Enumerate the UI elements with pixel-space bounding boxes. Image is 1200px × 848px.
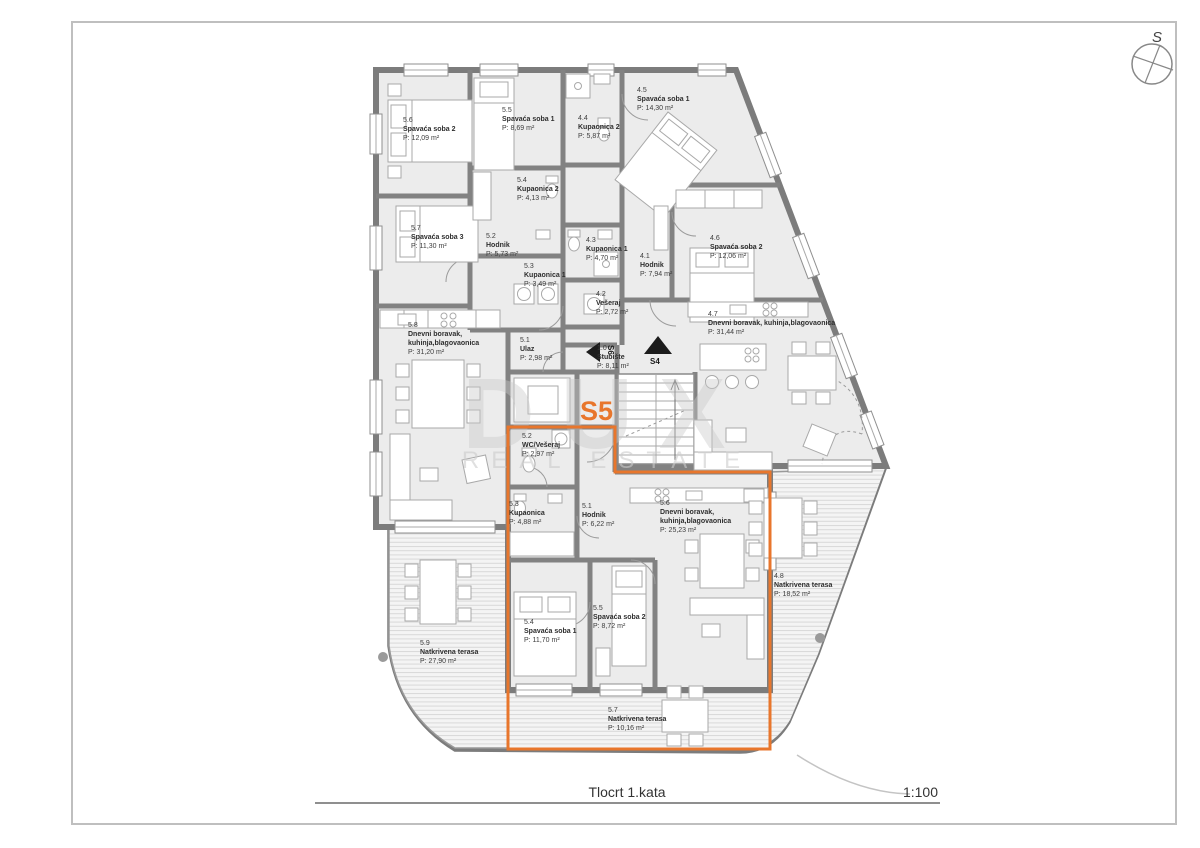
- room-area: P: 8,11 m²: [597, 363, 629, 370]
- room-name: Natkrivena terasa: [774, 582, 832, 589]
- room-name: Natkrivena terasa: [608, 716, 666, 723]
- title-block: Tlocrt 1.kata 1:100: [315, 784, 940, 803]
- closet: [654, 206, 668, 250]
- room-area: P: 8,69 m²: [502, 125, 535, 132]
- room-area: P: 8,72 m²: [593, 623, 626, 630]
- room-code: 5.2: [486, 233, 496, 240]
- room-code: 5.3: [524, 263, 534, 270]
- room-area: P: 10,16 m²: [608, 725, 645, 732]
- kitchen-counter: [630, 488, 768, 503]
- floor-plan-sheet: S6 S4 DUX REAL ESTATE S5 5.6Spavaća soba…: [0, 0, 1200, 848]
- room-area: P: 25,23 m²: [660, 527, 697, 534]
- room-area: P: 6,22 m²: [582, 521, 615, 528]
- room-code: 5.9: [420, 640, 430, 647]
- kitchen-counter: [380, 310, 500, 328]
- room-code: 5.5: [593, 605, 603, 612]
- terrace-table: [749, 498, 817, 558]
- room-code: 5.6: [403, 117, 413, 124]
- room-name: Natkrivena terasa: [420, 649, 478, 656]
- room-name: Dnevni boravak, kuhinja,blagovaonica: [708, 320, 835, 327]
- room-code: 4.1: [640, 253, 650, 260]
- drawing-scale: 1:100: [903, 784, 938, 800]
- room-code: 5.7: [411, 225, 421, 232]
- room-code: 5.1: [520, 337, 530, 344]
- room-area: P: 2,98 m²: [520, 355, 553, 362]
- room-code: 5.2: [522, 433, 532, 440]
- room-name: Kupaonica 2: [578, 124, 620, 131]
- room-code: 5.4: [517, 177, 527, 184]
- room-code: 5.6: [660, 500, 670, 507]
- room-name: Hodnik: [640, 262, 664, 269]
- wardrobe: [676, 190, 762, 208]
- room-name: Kupaonica 1: [586, 246, 628, 253]
- room-name: Spavaća soba 2: [710, 244, 763, 251]
- room-area: P: 18,52 m²: [774, 591, 811, 598]
- room-area: P: 11,30 m²: [411, 243, 447, 250]
- room-name: Spavaća soba 1: [502, 116, 555, 123]
- room-area: P: 4,70 m²: [586, 255, 619, 262]
- unit-s5-label: S5: [580, 396, 613, 426]
- room-name-line2: kuhinja,blagovaonica: [660, 518, 731, 525]
- room-area: P: 31,44 m²: [708, 329, 745, 336]
- room-code: 4.7: [708, 311, 718, 318]
- room-code: 1.0: [597, 345, 607, 352]
- compass-icon: S: [1132, 29, 1173, 84]
- room-code: 5.5: [502, 107, 512, 114]
- room-code: 5.7: [608, 707, 618, 714]
- terrace-table: [405, 560, 471, 624]
- room-code: 4.2: [596, 291, 606, 298]
- bed: [474, 78, 514, 170]
- room-area: P: 7,94 m²: [640, 271, 673, 278]
- room-name: Ulaz: [520, 346, 535, 353]
- room-name: Kupaonica 2: [517, 186, 559, 193]
- room-area: P: 31,20 m²: [408, 349, 445, 356]
- room-area: P: 5,73 m²: [486, 251, 519, 258]
- room-area: P: 12,06 m²: [710, 253, 747, 260]
- room-area: P: 4,13 m²: [517, 195, 550, 202]
- room-name: Dnevni boravak,: [660, 509, 714, 516]
- kitchen-counter: [688, 302, 808, 317]
- room-area: P: 3,49 m²: [524, 281, 557, 288]
- watermark-subtitle: REAL ESTATE: [462, 447, 752, 474]
- room-name: WC/Vešeraj: [522, 442, 560, 449]
- room-name: Spavaća soba 1: [524, 628, 577, 635]
- room-code: 5.4: [524, 619, 534, 626]
- room-code: 5.3: [509, 501, 519, 508]
- room-name: Kupaonica 1: [524, 272, 566, 279]
- room-name: Spavaća soba 2: [593, 614, 646, 621]
- room-area: P: 27,90 m²: [420, 658, 457, 665]
- room-area: P: 5,87 m²: [578, 133, 611, 140]
- room-area: P: 2,72 m²: [596, 309, 629, 316]
- room-name: Stubište: [597, 354, 625, 361]
- room-name: Hodnik: [582, 512, 606, 519]
- room-area: P: 12,09 m²: [403, 135, 440, 142]
- room-area: P: 4,88 m²: [509, 519, 542, 526]
- room-name: Spavaća soba 1: [637, 96, 690, 103]
- room-code: 4.6: [710, 235, 720, 242]
- drawing-title: Tlocrt 1.kata: [588, 784, 665, 800]
- room-code: 5.1: [582, 503, 592, 510]
- room-code: 4.8: [774, 573, 784, 580]
- room-area: P: 2,97 m²: [522, 451, 555, 458]
- room-name-line2: kuhinja,blagovaonica: [408, 340, 479, 347]
- room-code: 4.5: [637, 87, 647, 94]
- room-name: Kupaonica: [509, 510, 545, 517]
- room-name: Dnevni boravak,: [408, 331, 462, 338]
- room-area: P: 11,70 m²: [524, 637, 560, 644]
- room-name: Hodnik: [486, 242, 510, 249]
- room-name: Vešeraj: [596, 300, 621, 307]
- room-code: 4.4: [578, 115, 588, 122]
- room-code: 4.3: [586, 237, 596, 244]
- room-code: 5.8: [408, 322, 418, 329]
- room-name: Spavaća soba 3: [411, 234, 464, 241]
- room-name: Spavaća soba 2: [403, 126, 456, 133]
- room-area: P: 14,30 m²: [637, 105, 674, 112]
